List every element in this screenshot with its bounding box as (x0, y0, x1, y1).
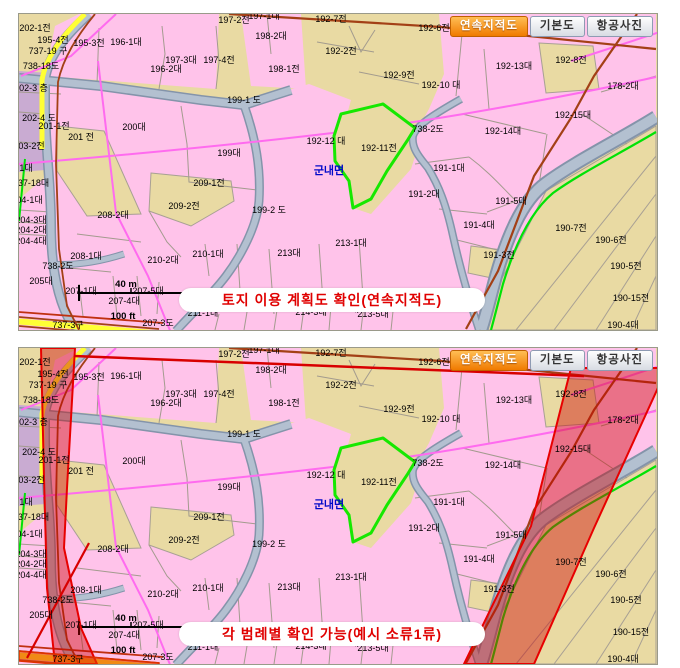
parcel-label: 190-6전 (595, 569, 626, 579)
parcel-label: 191-1대 (433, 163, 464, 173)
parcel-label: 191-1대 (433, 497, 464, 507)
parcel-label: 192-15대 (555, 444, 591, 454)
parcel-label: 190-7전 (555, 557, 586, 567)
parcel-label: 198-1전 (268, 398, 299, 408)
parcel-label: 209-1전 (193, 512, 224, 522)
parcel-label: 199-1 도 (227, 95, 261, 105)
parcel-label: 208-2대 (97, 210, 128, 220)
parcel-label: 195-4전 (37, 369, 68, 379)
parcel-label: 201-1전 (38, 455, 69, 465)
parcel-label: 205대 (29, 276, 52, 286)
parcel-label: 201 전 (68, 466, 94, 476)
tab-1[interactable]: 기본도 (530, 16, 585, 37)
parcel-label: 191-2대 (408, 189, 439, 199)
parcel-label: 198-1전 (268, 64, 299, 74)
parcel-label: 196-1대 (110, 37, 141, 47)
parcel-label: 192-8전 (555, 389, 586, 399)
parcel-label: 196-2대 (150, 398, 181, 408)
parcel-label: 200대 (122, 456, 145, 466)
parcel-label: 207-4대 (108, 296, 139, 306)
parcel-label: 191-4대 (463, 220, 494, 230)
parcel-label: 196-1대 (110, 371, 141, 381)
map-panel-top[interactable]: 202-1전197-2전197-1대192-7전192-6전178-1대195-… (18, 13, 658, 331)
parcel-label: 195-3전 (73, 372, 104, 382)
parcel-label: 192-14대 (485, 460, 521, 470)
map-panel-bottom[interactable]: 202-1전197-2전197-1대192-7전192-6전178-1대195-… (18, 347, 658, 665)
parcel-label: 192-14대 (485, 126, 521, 136)
parcel-label: 201-1전 (38, 121, 69, 131)
tab-2[interactable]: 항공사진 (587, 16, 653, 37)
parcel-label: 204-2대 (19, 559, 47, 569)
scalebar-label: 100 ft (111, 645, 137, 656)
parcel-label: 192-6전 (418, 357, 449, 367)
parcel-label: 197-1대 (248, 348, 279, 355)
parcel-label: 202-1전 (19, 357, 50, 367)
parcel-label: 191-5대 (495, 530, 526, 540)
parcel-label: 208-1대 (70, 251, 101, 261)
parcel-label: 191-2대 (408, 523, 439, 533)
parcel-label: 737-3구 (52, 654, 83, 664)
parcel-label: 202-1전 (19, 23, 50, 33)
land-map-viewer: 202-1전197-2전197-1대192-7전192-6전178-1대195-… (0, 0, 680, 668)
parcel-label: 199-2 도 (252, 205, 286, 215)
parcel-label: 201 전 (68, 132, 94, 142)
parcel-label: 197-2전 (218, 15, 249, 25)
town-label: 군내면 (314, 497, 344, 511)
parcel-label: 178-2대 (607, 81, 638, 91)
parcel-label: 195-4전 (37, 35, 68, 45)
parcel-label: 192-13대 (496, 395, 532, 405)
parcel-label: 204-2대 (19, 225, 47, 235)
parcel-label: 738-2도 (42, 595, 73, 605)
parcel-label: 205대 (29, 610, 52, 620)
parcel-label: 190-6전 (595, 235, 626, 245)
parcel-label: 213-1대 (335, 238, 366, 248)
parcel-label: 192-9전 (383, 70, 414, 80)
parcel-label: 192-7전 (315, 14, 346, 24)
parcel-label: 737-3구 (52, 320, 83, 330)
parcel-label: 204-3대 (19, 215, 47, 225)
parcel-label: 204-1대 (19, 195, 43, 205)
parcel-label: 190-4대 (607, 654, 638, 664)
parcel-label: 190-4대 (607, 320, 638, 330)
parcel-label: 190-5전 (610, 595, 641, 605)
parcel-label: 199대 (217, 148, 240, 158)
town-label: 군내면 (314, 163, 344, 177)
parcel-label: 737-18대 (19, 178, 49, 188)
parcel-label: 213-1대 (335, 572, 366, 582)
parcel-label: 191-3전 (483, 584, 514, 594)
parcel-label: 199-1 도 (227, 429, 261, 439)
parcel-label: 191-5대 (495, 196, 526, 206)
parcel-label: 192-13대 (496, 61, 532, 71)
parcel-label: 203-2전 (19, 475, 45, 485)
parcel-label: 192-6전 (418, 23, 449, 33)
scalebar-label: 100 ft (111, 311, 137, 322)
parcel-label: 207-1대 (65, 620, 96, 630)
parcel-label: 207-1대 (65, 286, 96, 296)
parcel-label: 192-12 대 (307, 136, 346, 146)
parcel-label: 192-10 대 (422, 414, 461, 424)
parcel-label: 204-4대 (19, 236, 47, 246)
tab-0-active[interactable]: 연속지적도 (450, 16, 528, 37)
parcel-label: 192-12 대 (307, 470, 346, 480)
parcel-label: 203-1대 (19, 163, 33, 173)
tab-0-active[interactable]: 연속지적도 (450, 350, 528, 371)
parcel-label: 190-15전 (613, 627, 649, 637)
parcel-label: 213대 (277, 582, 300, 592)
parcel-label: 738-2도 (42, 261, 73, 271)
parcel-label: 213대 (277, 248, 300, 258)
parcel-label: 197-4전 (203, 55, 234, 65)
parcel-label: 192-2전 (325, 46, 356, 56)
parcel-label: 199대 (217, 482, 240, 492)
parcel-label: 203-1대 (19, 497, 33, 507)
parcel-label: 207-5대 (132, 620, 163, 630)
cadastral-map-bottom[interactable]: 202-1전197-2전197-1대192-7전192-6전178-1대195-… (19, 348, 657, 664)
parcel-label: 203-2전 (19, 141, 45, 151)
parcel-label: 209-2전 (168, 201, 199, 211)
parcel-label: 197-4전 (203, 389, 234, 399)
parcel-label: 192-2전 (325, 380, 356, 390)
parcel-label: 190-15전 (613, 293, 649, 303)
parcel-label: 195-3전 (73, 38, 104, 48)
parcel-label: 192-11전 (361, 143, 397, 153)
parcel-label: 207-3도 (142, 652, 173, 662)
parcel-label: 192-9전 (383, 404, 414, 414)
parcel-label: 198-2대 (255, 365, 286, 375)
parcel-label: 192-15대 (555, 110, 591, 120)
parcel-label: 199-2 도 (252, 539, 286, 549)
tab-1[interactable]: 기본도 (530, 350, 585, 371)
parcel-label: 197-2전 (218, 349, 249, 359)
parcel-label: 204-4대 (19, 570, 47, 580)
parcel-label: 190-7전 (555, 223, 586, 233)
parcel-label: 198-2대 (255, 31, 286, 41)
map-type-tabs: 연속지적도기본도항공사진 (448, 350, 653, 371)
parcel-label: 204-3대 (19, 549, 47, 559)
parcel-label: 191-4대 (463, 554, 494, 564)
parcel-label: 208-1대 (70, 585, 101, 595)
parcel-label: 210-2대 (147, 255, 178, 265)
parcel-label: 192-11전 (361, 477, 397, 487)
parcel-label: 208-2대 (97, 544, 128, 554)
parcel-label: 178-2대 (607, 415, 638, 425)
caption-banner-bottom: 각 범례별 확인 가능(예시 소류1류) (179, 622, 485, 646)
parcel-label: 209-1전 (193, 178, 224, 188)
cadastral-map-top[interactable]: 202-1전197-2전197-1대192-7전192-6전178-1대195-… (19, 14, 657, 330)
parcel-label: 738-2도 (412, 458, 443, 468)
parcel-label: 738-2도 (412, 124, 443, 134)
caption-banner-top: 토지 이용 계획도 확인(연속지적도) (179, 288, 485, 312)
parcel-label: 204-1대 (19, 529, 43, 539)
parcel-label: 210-1대 (192, 249, 223, 259)
parcel-label: 192-8전 (555, 55, 586, 65)
parcel-label: 210-1대 (192, 583, 223, 593)
parcel-label: 210-2대 (147, 589, 178, 599)
parcel-label: 738-18도 (23, 61, 59, 71)
parcel-label: 197-1대 (248, 14, 279, 21)
parcel-label: 737-19 구 (29, 380, 68, 390)
parcel-label: 209-2전 (168, 535, 199, 545)
parcel-label: 196-2대 (150, 64, 181, 74)
parcel-label: 737-19 구 (29, 46, 68, 56)
parcel-label: 207-3도 (142, 318, 173, 328)
parcel-label: 192-10 대 (422, 80, 461, 90)
parcel-label: 200대 (122, 122, 145, 132)
parcel-label: 191-3전 (483, 250, 514, 260)
parcel-label: 202-3 층 (19, 83, 48, 93)
tab-2[interactable]: 항공사진 (587, 350, 653, 371)
parcel-label: 207-5대 (132, 286, 163, 296)
parcel-label: 207-4대 (108, 630, 139, 640)
parcel-label: 192-7전 (315, 348, 346, 358)
parcel-label: 737-18대 (19, 512, 49, 522)
map-type-tabs: 연속지적도기본도항공사진 (448, 16, 653, 37)
parcel-label: 202-3 층 (19, 417, 48, 427)
parcel-label: 190-5전 (610, 261, 641, 271)
parcel-label: 738-18도 (23, 395, 59, 405)
